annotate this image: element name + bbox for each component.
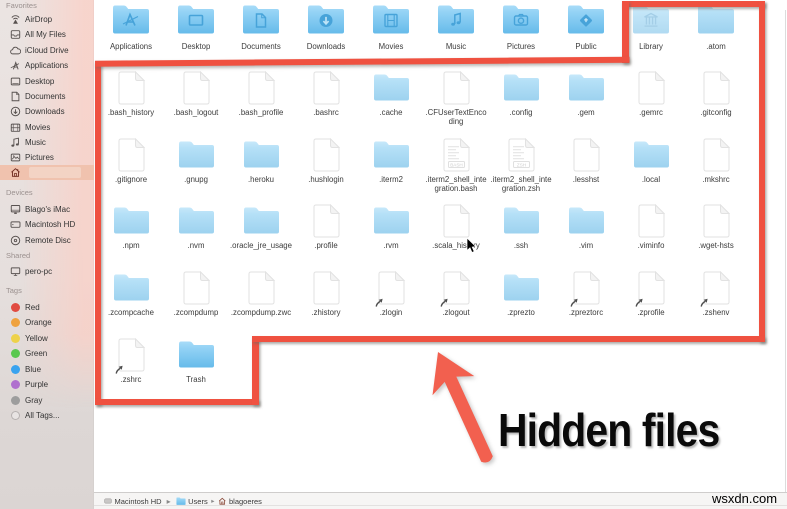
svg-text:BASH: BASH <box>450 162 463 167</box>
svg-text:ZSH: ZSH <box>516 162 525 167</box>
